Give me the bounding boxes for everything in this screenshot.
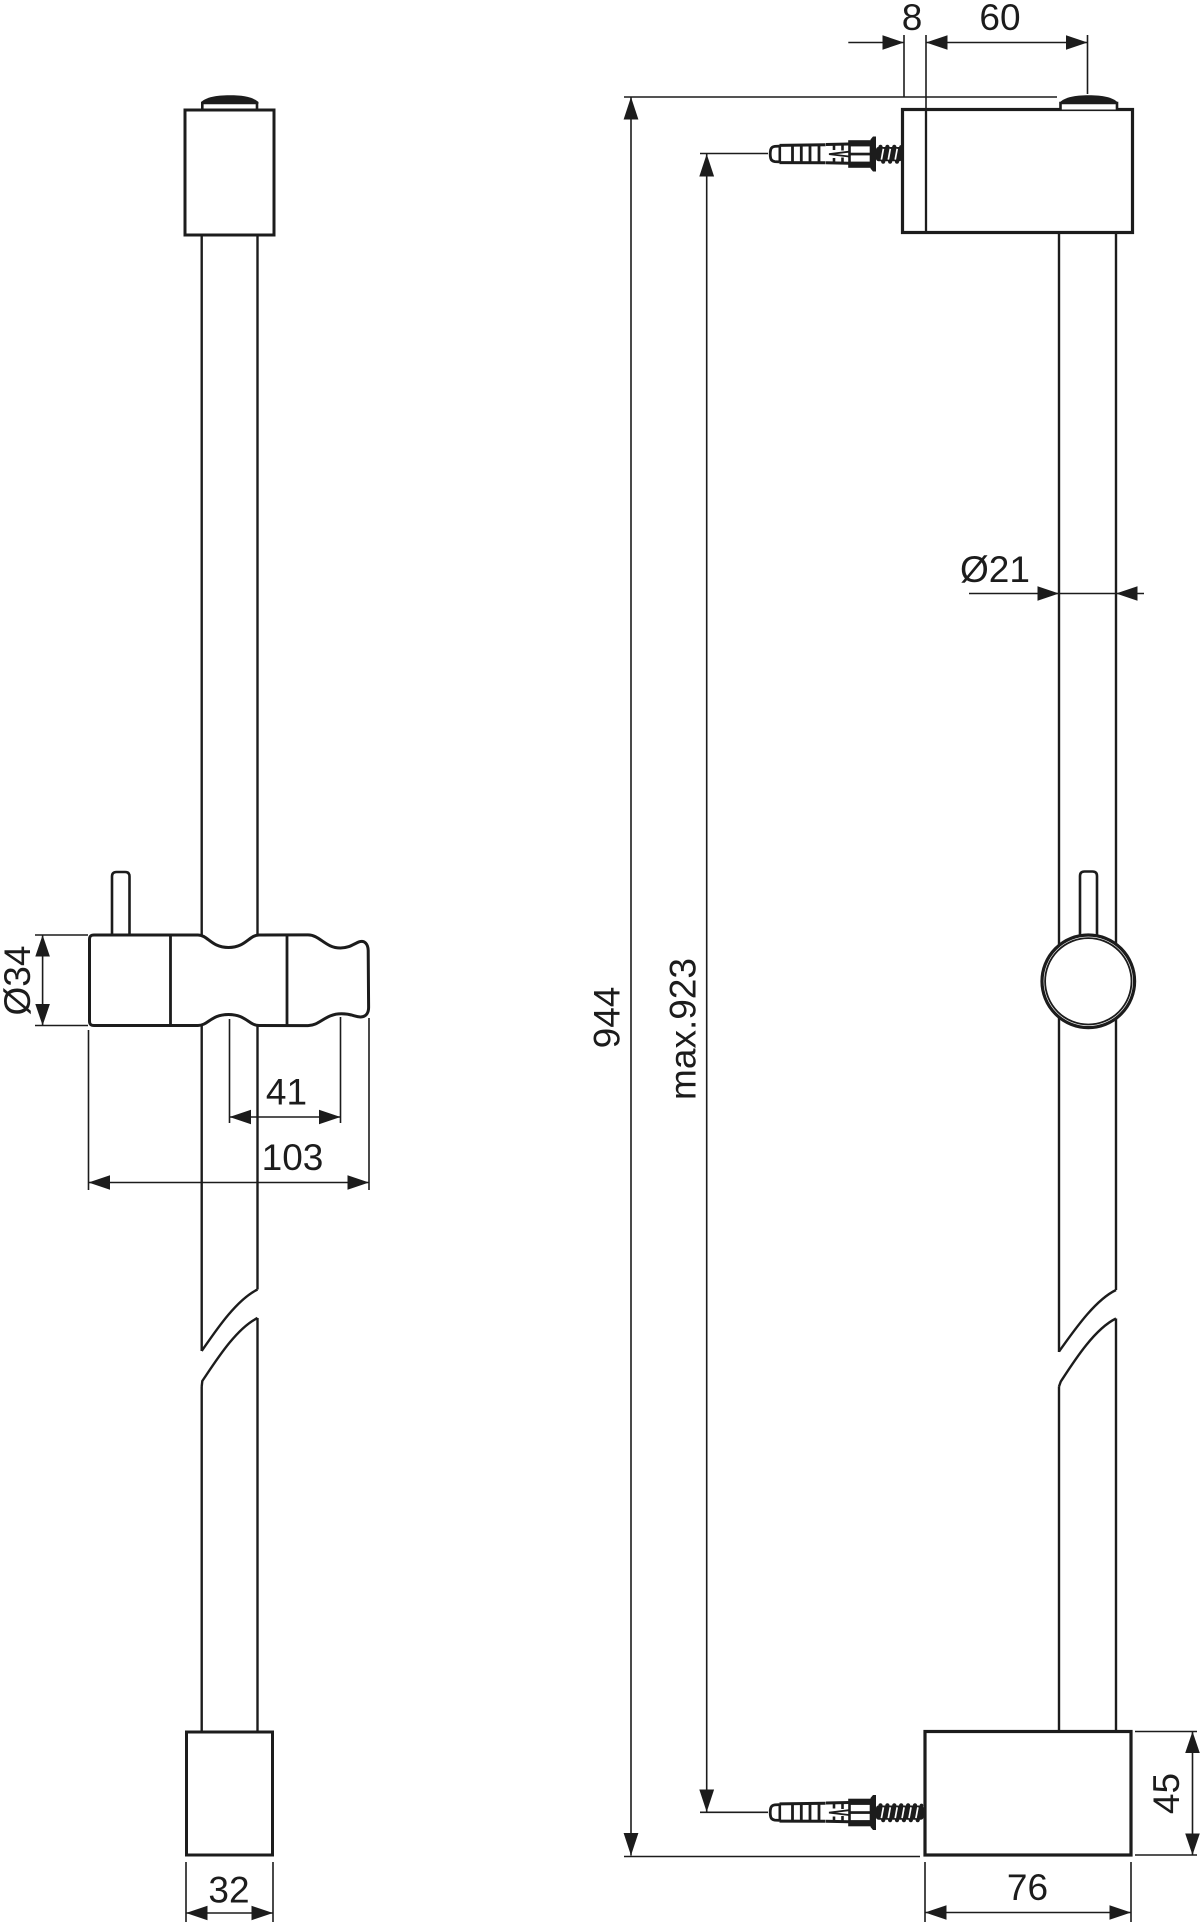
svg-text:76: 76 (1007, 1867, 1048, 1908)
svg-text:Ø34: Ø34 (0, 946, 38, 1016)
svg-text:8: 8 (902, 0, 923, 38)
svg-text:103: 103 (262, 1137, 324, 1178)
svg-text:max.923: max.923 (663, 958, 704, 1100)
svg-text:944: 944 (587, 987, 628, 1049)
svg-text:32: 32 (208, 1870, 249, 1911)
svg-text:45: 45 (1146, 1773, 1187, 1814)
svg-text:60: 60 (979, 0, 1020, 38)
svg-text:Ø21: Ø21 (960, 549, 1030, 590)
svg-text:41: 41 (266, 1072, 307, 1113)
